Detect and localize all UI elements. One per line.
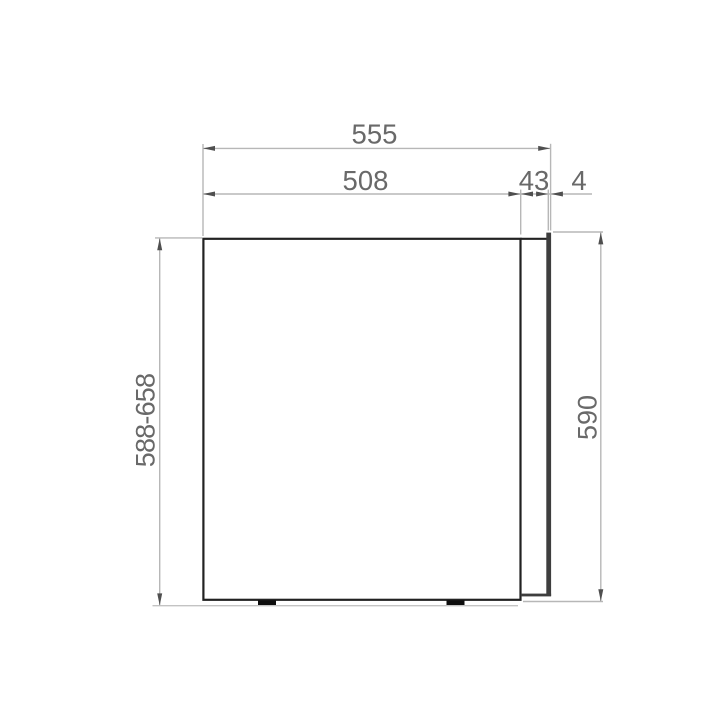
svg-text:4: 4	[571, 165, 586, 196]
svg-text:590: 590	[573, 395, 603, 440]
svg-text:43: 43	[519, 165, 550, 196]
svg-text:508: 508	[343, 165, 389, 196]
svg-text:555: 555	[352, 118, 398, 149]
svg-text:588-658: 588-658	[131, 374, 161, 468]
